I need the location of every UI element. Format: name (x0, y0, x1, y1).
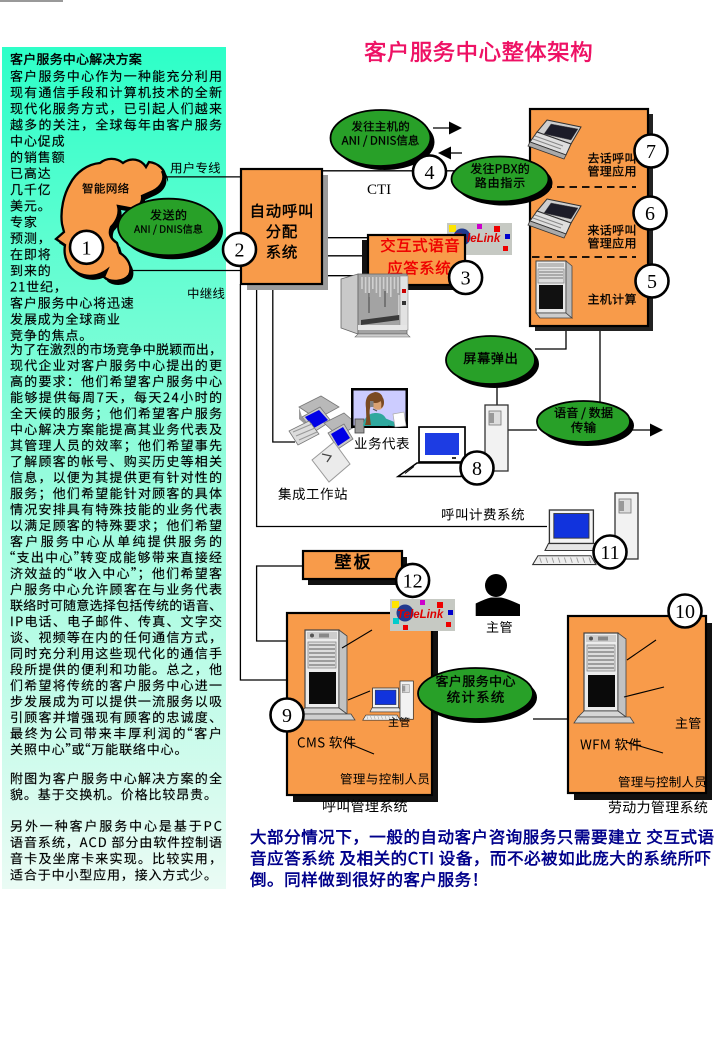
svg-text:2: 2 (235, 239, 245, 261)
svg-text:3: 3 (461, 268, 471, 290)
svg-text:1: 1 (82, 237, 92, 259)
svg-text:12: 12 (403, 570, 423, 592)
svg-text:5: 5 (647, 271, 657, 293)
svg-text:6: 6 (645, 203, 655, 225)
svg-text:TeleLink: TeleLink (397, 609, 444, 621)
svg-text:11: 11 (600, 542, 619, 564)
svg-text:4: 4 (425, 162, 435, 184)
svg-text:8: 8 (472, 458, 482, 480)
svg-text:9: 9 (282, 705, 292, 727)
svg-text:7: 7 (646, 141, 656, 163)
svg-text:CTI: CTI (367, 182, 391, 198)
svg-text:10: 10 (675, 601, 695, 623)
